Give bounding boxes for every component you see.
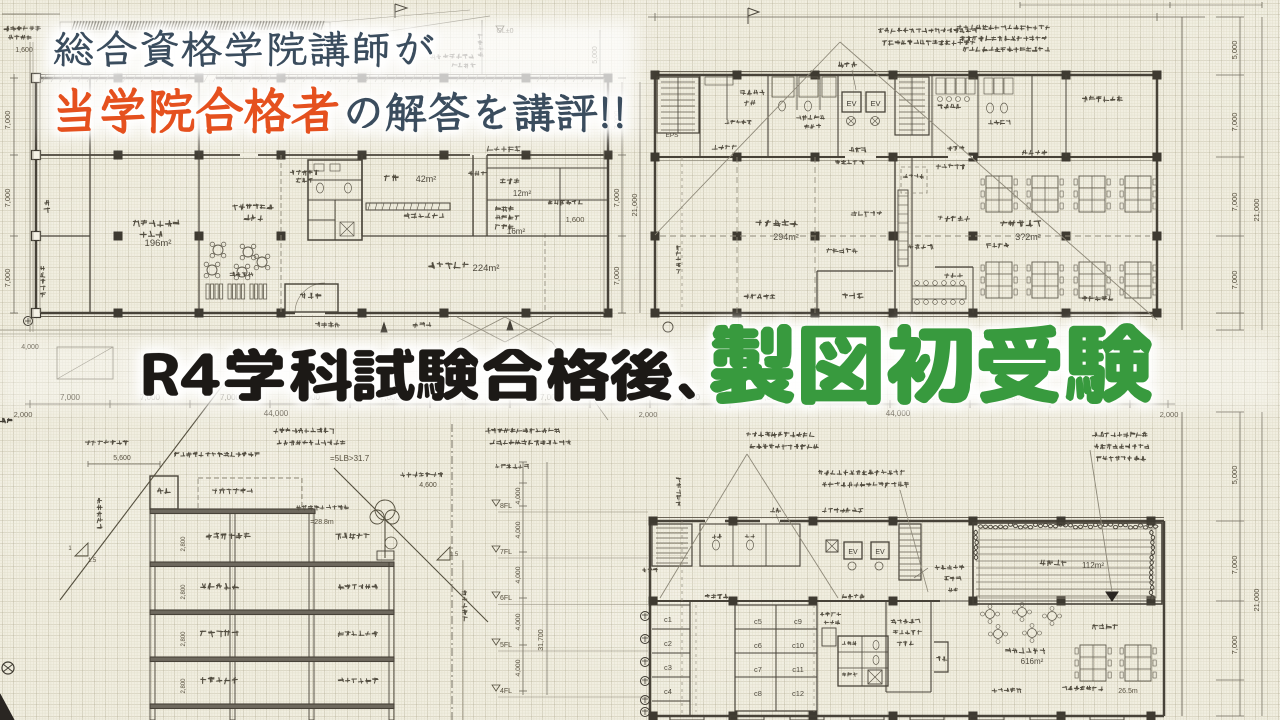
svg-text:c3: c3: [664, 663, 672, 672]
svg-text:31,700: 31,700: [538, 629, 545, 651]
svg-text:c7: c7: [754, 665, 762, 674]
svg-text:c10: c10: [792, 641, 804, 650]
svg-text:5,600: 5,600: [113, 455, 131, 462]
svg-text:7FL: 7FL: [500, 549, 512, 556]
svg-text:EV: EV: [846, 99, 856, 108]
svg-text:2,800: 2,800: [181, 584, 187, 600]
svg-text:2,800: 2,800: [181, 536, 187, 552]
svg-text:7,000: 7,000: [612, 189, 621, 208]
svg-text:c4: c4: [664, 687, 672, 696]
svg-text:7,000: 7,000: [1230, 271, 1239, 290]
svg-text:4,000: 4,000: [515, 487, 522, 504]
svg-text:4FL: 4FL: [500, 688, 512, 695]
svg-text:7,000: 7,000: [1230, 193, 1239, 212]
svg-text:1,600: 1,600: [15, 47, 33, 54]
svg-text:8FL: 8FL: [500, 503, 512, 510]
svg-text:26.5m: 26.5m: [1118, 688, 1138, 695]
svg-text:5FL: 5FL: [500, 642, 512, 649]
svg-text:c8: c8: [754, 689, 762, 698]
svg-text:3?2m²: 3?2m²: [1015, 232, 1041, 242]
svg-text:6FL: 6FL: [500, 595, 512, 602]
svg-text:616m²: 616m²: [1021, 657, 1044, 666]
svg-text:7,000: 7,000: [3, 111, 12, 130]
svg-text:21,000: 21,000: [630, 194, 639, 217]
svg-text:=5LB>31.7: =5LB>31.7: [330, 454, 370, 463]
svg-text:5,000: 5,000: [1230, 466, 1239, 485]
svg-text:EV: EV: [848, 549, 858, 556]
svg-text:294m²: 294m²: [773, 232, 799, 242]
svg-text:c2: c2: [664, 639, 672, 648]
svg-text:c1: c1: [664, 615, 672, 624]
svg-text:c6: c6: [754, 641, 762, 650]
svg-text:1,600: 1,600: [566, 215, 585, 224]
svg-text:EPS: EPS: [665, 132, 679, 139]
svg-text:2,800: 2,800: [181, 631, 187, 647]
svg-text:2,800: 2,800: [181, 678, 187, 694]
svg-text:7,000: 7,000: [3, 189, 12, 208]
svg-text:4,600: 4,600: [419, 482, 437, 489]
svg-text:5,000: 5,000: [1230, 41, 1239, 60]
svg-text:1.5: 1.5: [450, 552, 459, 558]
svg-text:16m²: 16m²: [507, 227, 526, 236]
svg-text:7,000: 7,000: [612, 267, 621, 286]
svg-text:7,000: 7,000: [1230, 636, 1239, 655]
svg-text:4,000: 4,000: [515, 521, 522, 538]
svg-text:196m²: 196m²: [145, 238, 172, 249]
svg-text:c11: c11: [792, 665, 804, 674]
svg-text:EV: EV: [870, 99, 880, 108]
svg-text:c5: c5: [754, 617, 762, 626]
svg-text:4,000: 4,000: [515, 566, 522, 583]
svg-text:2,000: 2,000: [14, 410, 33, 419]
svg-text:42m²: 42m²: [416, 174, 437, 184]
svg-text:12m²: 12m²: [513, 189, 532, 198]
svg-text:224m²: 224m²: [473, 263, 500, 274]
svg-text:7,000: 7,000: [1230, 556, 1239, 575]
svg-text:EV: EV: [875, 549, 885, 556]
svg-text:4,000: 4,000: [515, 659, 522, 676]
svg-text:c12: c12: [792, 689, 804, 698]
svg-text:=28.8m: =28.8m: [310, 519, 334, 526]
svg-text:1.5: 1.5: [88, 558, 97, 564]
svg-text:7,000: 7,000: [1230, 113, 1239, 132]
svg-text:c9: c9: [794, 617, 802, 626]
svg-text:7,000: 7,000: [3, 269, 12, 288]
svg-text:21,000: 21,000: [1252, 199, 1261, 222]
svg-text:21,000: 21,000: [1252, 589, 1261, 612]
svg-text:4,000: 4,000: [515, 613, 522, 630]
svg-text:112m²: 112m²: [1082, 561, 1104, 570]
